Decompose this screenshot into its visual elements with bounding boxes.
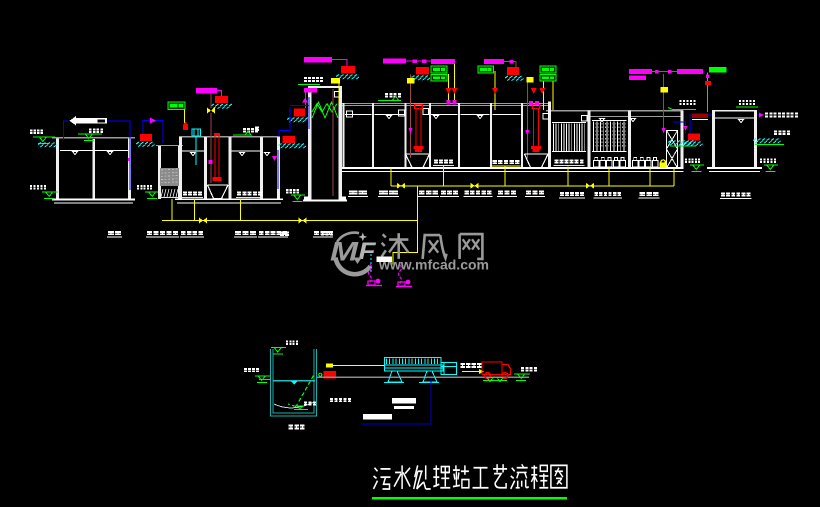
svg-text:M: M — [330, 237, 359, 267]
svg-text:www.mfcad.com: www.mfcad.com — [378, 257, 489, 273]
svg-text:F: F — [359, 238, 377, 265]
